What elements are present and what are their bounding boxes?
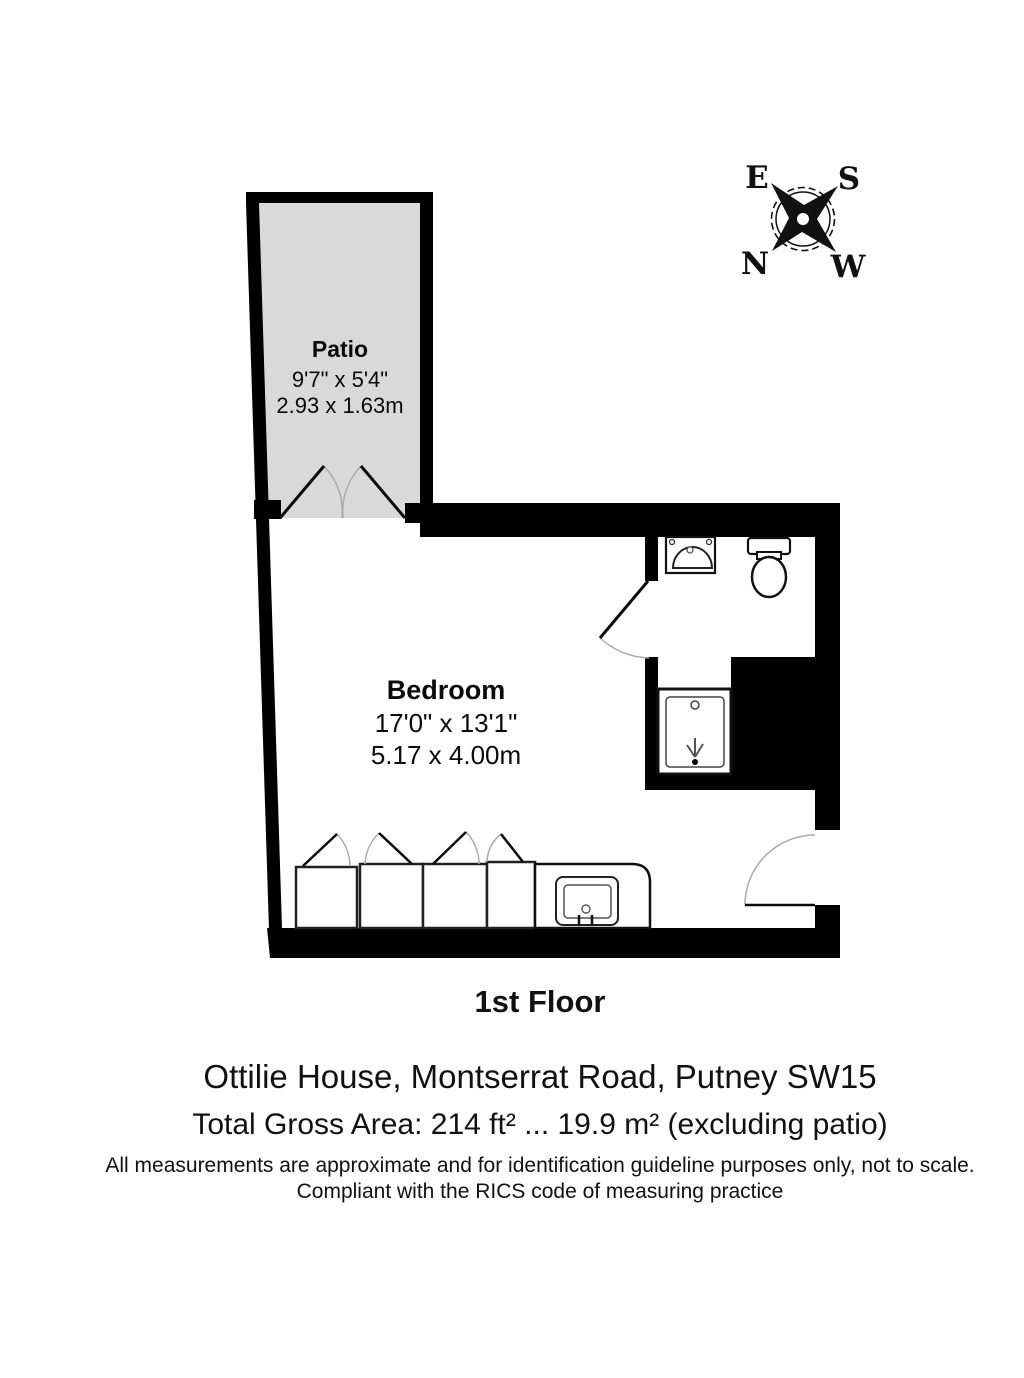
bedroom-dimensions-metric: 5.17 x 4.00m — [336, 740, 556, 771]
counter-with-sink — [535, 864, 650, 928]
door-leaf — [501, 834, 523, 862]
patio-dimensions-metric: 2.93 x 1.63m — [245, 393, 435, 419]
measurements-disclaimer: All measurements are approximate and for… — [55, 1154, 1024, 1178]
drain-icon — [582, 905, 590, 913]
entrance-door — [745, 835, 815, 905]
patio-dimensions-imperial: 9'7" x 5'4" — [245, 367, 435, 393]
wardrobe-unit — [487, 862, 535, 928]
bathroom-door — [600, 581, 649, 658]
door-leaf — [379, 833, 412, 864]
bathroom-partition-lower — [645, 657, 658, 790]
top-wall — [420, 503, 840, 537]
door-swing-arc — [600, 638, 649, 658]
bedroom-name: Bedroom — [336, 674, 556, 706]
floor-title: 1st Floor — [55, 984, 1024, 1020]
bedroom-label: Bedroom 17'0" x 13'1" 5.17 x 4.00m — [336, 674, 556, 771]
door-leaf — [433, 832, 466, 864]
door-swing-arc — [365, 833, 379, 864]
door-leaf — [303, 834, 337, 866]
compass-letter-south: S — [838, 161, 860, 197]
door-swing-arc — [337, 834, 350, 866]
patio-top-wall — [246, 192, 433, 203]
shower-niche-bottom-wall — [645, 774, 817, 790]
tap-icon — [707, 540, 712, 545]
bathroom-sink-icon — [666, 537, 715, 573]
floorplan-page: E S N W Patio 9'7" x 5'4" 2.93 x 1.63m B… — [0, 0, 1024, 1378]
bathroom-partition-upper — [645, 537, 658, 581]
wardrobe-unit — [423, 864, 487, 928]
shower-head-icon — [691, 701, 699, 709]
door-swing-arc — [487, 834, 501, 862]
door-swing-arc — [466, 832, 479, 864]
patio-junction-block — [254, 500, 281, 519]
compass-letter-east: E — [745, 160, 769, 196]
wardrobe-unit — [296, 867, 357, 928]
compass-hub-center — [797, 213, 809, 225]
wardrobe-units — [296, 862, 535, 928]
compass-letter-north: N — [741, 246, 769, 282]
property-address: Ottilie House, Montserrat Road, Putney S… — [55, 1058, 1024, 1096]
door-leaf — [600, 581, 648, 638]
toilet-icon — [748, 538, 790, 597]
wardrobe-unit — [360, 864, 423, 928]
compass-rose-icon: E S N W — [741, 160, 867, 285]
shower-tray-icon — [658, 689, 731, 774]
patio-label: Patio 9'7" x 5'4" 2.93 x 1.63m — [245, 336, 435, 419]
bedroom-dimensions-imperial: 17'0" x 13'1" — [336, 708, 556, 739]
bottom-wall — [267, 928, 840, 958]
drain-icon — [687, 547, 693, 553]
bathroom-block-wall — [731, 657, 817, 790]
door-swing-arc — [745, 835, 815, 905]
total-gross-area: Total Gross Area: 214 ft² ... 19.9 m² (e… — [55, 1108, 1024, 1142]
compass-letter-west: W — [830, 249, 867, 285]
tap-icon — [670, 540, 675, 545]
right-wall-upper — [815, 503, 840, 830]
drain-point-icon — [692, 759, 698, 765]
top-wall-step — [405, 503, 421, 523]
patio-name: Patio — [245, 336, 435, 364]
rics-compliance-note: Compliant with the RICS code of measurin… — [55, 1180, 1024, 1204]
toilet-bowl — [752, 557, 786, 597]
